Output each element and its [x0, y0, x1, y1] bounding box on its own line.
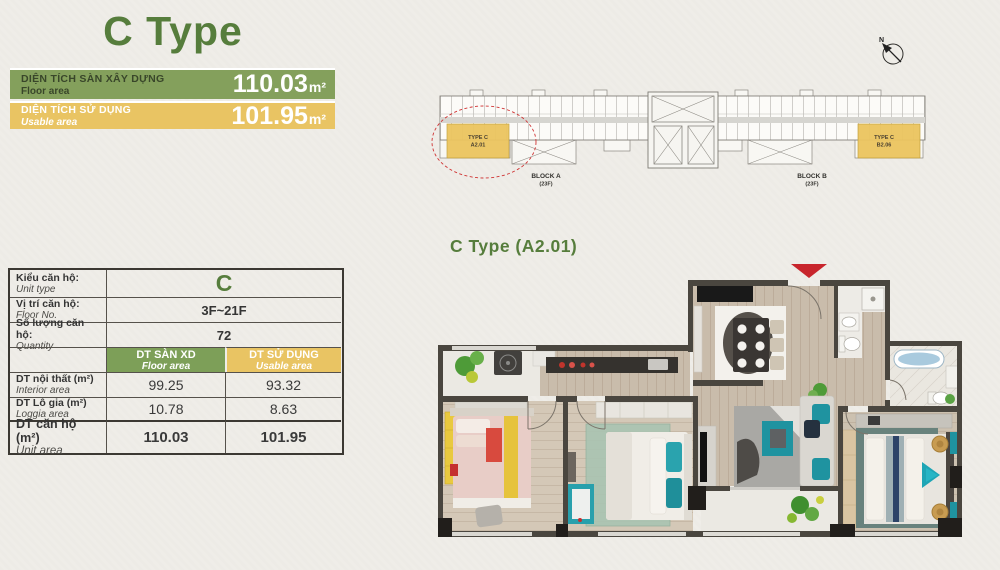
- unit-type-value: C: [107, 270, 341, 297]
- page: C Type DIỆN TÍCH SÀN XÂY DỰNG Floor area…: [0, 0, 1000, 570]
- col-header-usable-area: DT SỬ DỤNGUsable area: [225, 347, 341, 372]
- unit-info-table: Kiểu căn hộ:Unit type C Vị trí căn hộ:Fl…: [8, 268, 344, 455]
- site-key-plan: TYPE C A2.01 TYPE C B2.06 BLOCK A (23F) …: [425, 30, 945, 190]
- col-header-floor-area: DT SÀN XDFloor area: [107, 347, 225, 372]
- block-a-label: BLOCK A (23F): [531, 173, 561, 188]
- loggia-floor-value: 10.78: [107, 397, 225, 420]
- interior-usable-value: 93.32: [225, 372, 341, 397]
- plan-title: C Type (A2.01): [450, 236, 577, 257]
- table-row-label: Kiểu căn hộ:Unit type: [10, 270, 107, 297]
- page-title: C Type: [10, 8, 336, 55]
- block-b-label: BLOCK B (23F): [797, 173, 827, 188]
- floor-area-label-en: Floor area: [21, 86, 164, 97]
- table-row-label: DT nội thất (m²)Interior area: [10, 372, 107, 397]
- svg-text:BLOCK B: BLOCK B: [797, 173, 827, 180]
- svg-text:(23F): (23F): [539, 182, 552, 188]
- unit-a-label-line2: A2.01: [471, 143, 486, 149]
- floor-no-value: 3F~21F: [107, 297, 341, 322]
- north-label: N: [879, 37, 884, 44]
- floor-area-label-vi: DIỆN TÍCH SÀN XÂY DỰNG: [21, 73, 164, 85]
- svg-text:(23F): (23F): [805, 182, 818, 188]
- entry-arrow-icon: [791, 264, 827, 278]
- loggia-usable-value: 8.63: [225, 397, 341, 420]
- table-header-spacer: [10, 347, 107, 372]
- unit-floor-value: 110.03: [107, 420, 225, 453]
- north-arrow-icon: N: [879, 37, 903, 64]
- usable-area-bar: DIỆN TÍCH SỬ DỤNG Usable area 101.95m²: [10, 101, 335, 129]
- usable-area-value: 101.95m²: [231, 104, 326, 129]
- floor-area-bar: DIỆN TÍCH SÀN XÂY DỰNG Floor area 110.03…: [10, 68, 335, 99]
- interior-floor-value: 99.25: [107, 372, 225, 397]
- usable-area-label-vi: DIỆN TÍCH SỬ DỤNG: [21, 104, 131, 116]
- svg-text:BLOCK A: BLOCK A: [531, 173, 561, 180]
- unit-b-highlight: TYPE C B2.06: [858, 124, 920, 158]
- unit-b-label-line1: TYPE C: [874, 135, 894, 141]
- unit-b-label-line2: B2.06: [877, 143, 892, 149]
- quantity-value: 72: [107, 322, 341, 347]
- apartment-floor-plan: [430, 260, 970, 546]
- usable-area-bar-labels: DIỆN TÍCH SỬ DỤNG Usable area: [21, 104, 131, 128]
- table-row-label: Số lượng căn hộ:Quantity: [10, 322, 107, 347]
- floor-area-bar-labels: DIỆN TÍCH SÀN XÂY DỰNG Floor area: [21, 73, 164, 97]
- usable-area-label-en: Usable area: [21, 117, 131, 128]
- unit-a-label-line1: TYPE C: [468, 135, 488, 141]
- table-row-label: DT căn hộ (m²)Unit area: [10, 420, 107, 453]
- unit-usable-value: 101.95: [225, 420, 341, 453]
- floor-area-value: 110.03m²: [233, 72, 326, 97]
- building-outline: [440, 90, 925, 168]
